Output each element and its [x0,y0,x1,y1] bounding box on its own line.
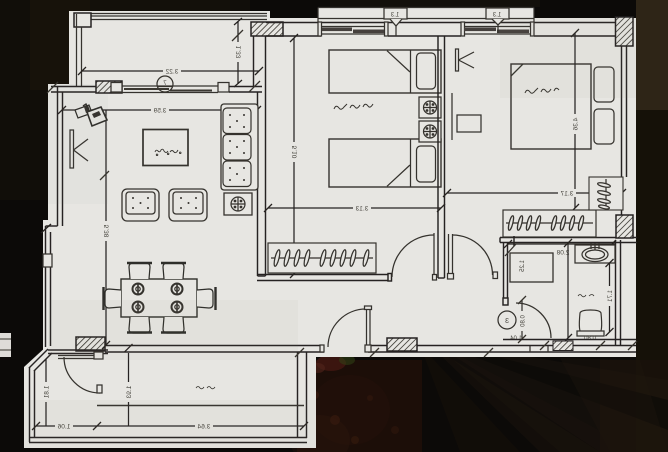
svg-text:1.93: 1.93 [126,386,133,399]
svg-text:3.17: 3.17 [560,191,573,198]
svg-text:3.13: 3.13 [355,206,368,213]
svg-text:1.71: 1.71 [608,290,614,302]
svg-text:3: 3 [505,318,509,325]
svg-text:3.59: 3.59 [153,108,166,115]
svg-text:1.25: 1.25 [520,260,526,272]
svg-text:1.3: 1.3 [492,13,501,19]
svg-text:0.80: 0.80 [521,315,527,327]
svg-text:1.3: 1.3 [390,13,399,19]
svg-text:1.33: 1.33 [236,46,243,59]
svg-text:2.08: 2.08 [556,250,569,257]
svg-text:5.38: 5.38 [104,225,111,238]
svg-text:5.10: 5.10 [292,146,299,159]
svg-text:1.81: 1.81 [44,386,51,399]
svg-text:3.22: 3.22 [165,69,178,76]
svg-text:4.36: 4.36 [573,118,580,131]
